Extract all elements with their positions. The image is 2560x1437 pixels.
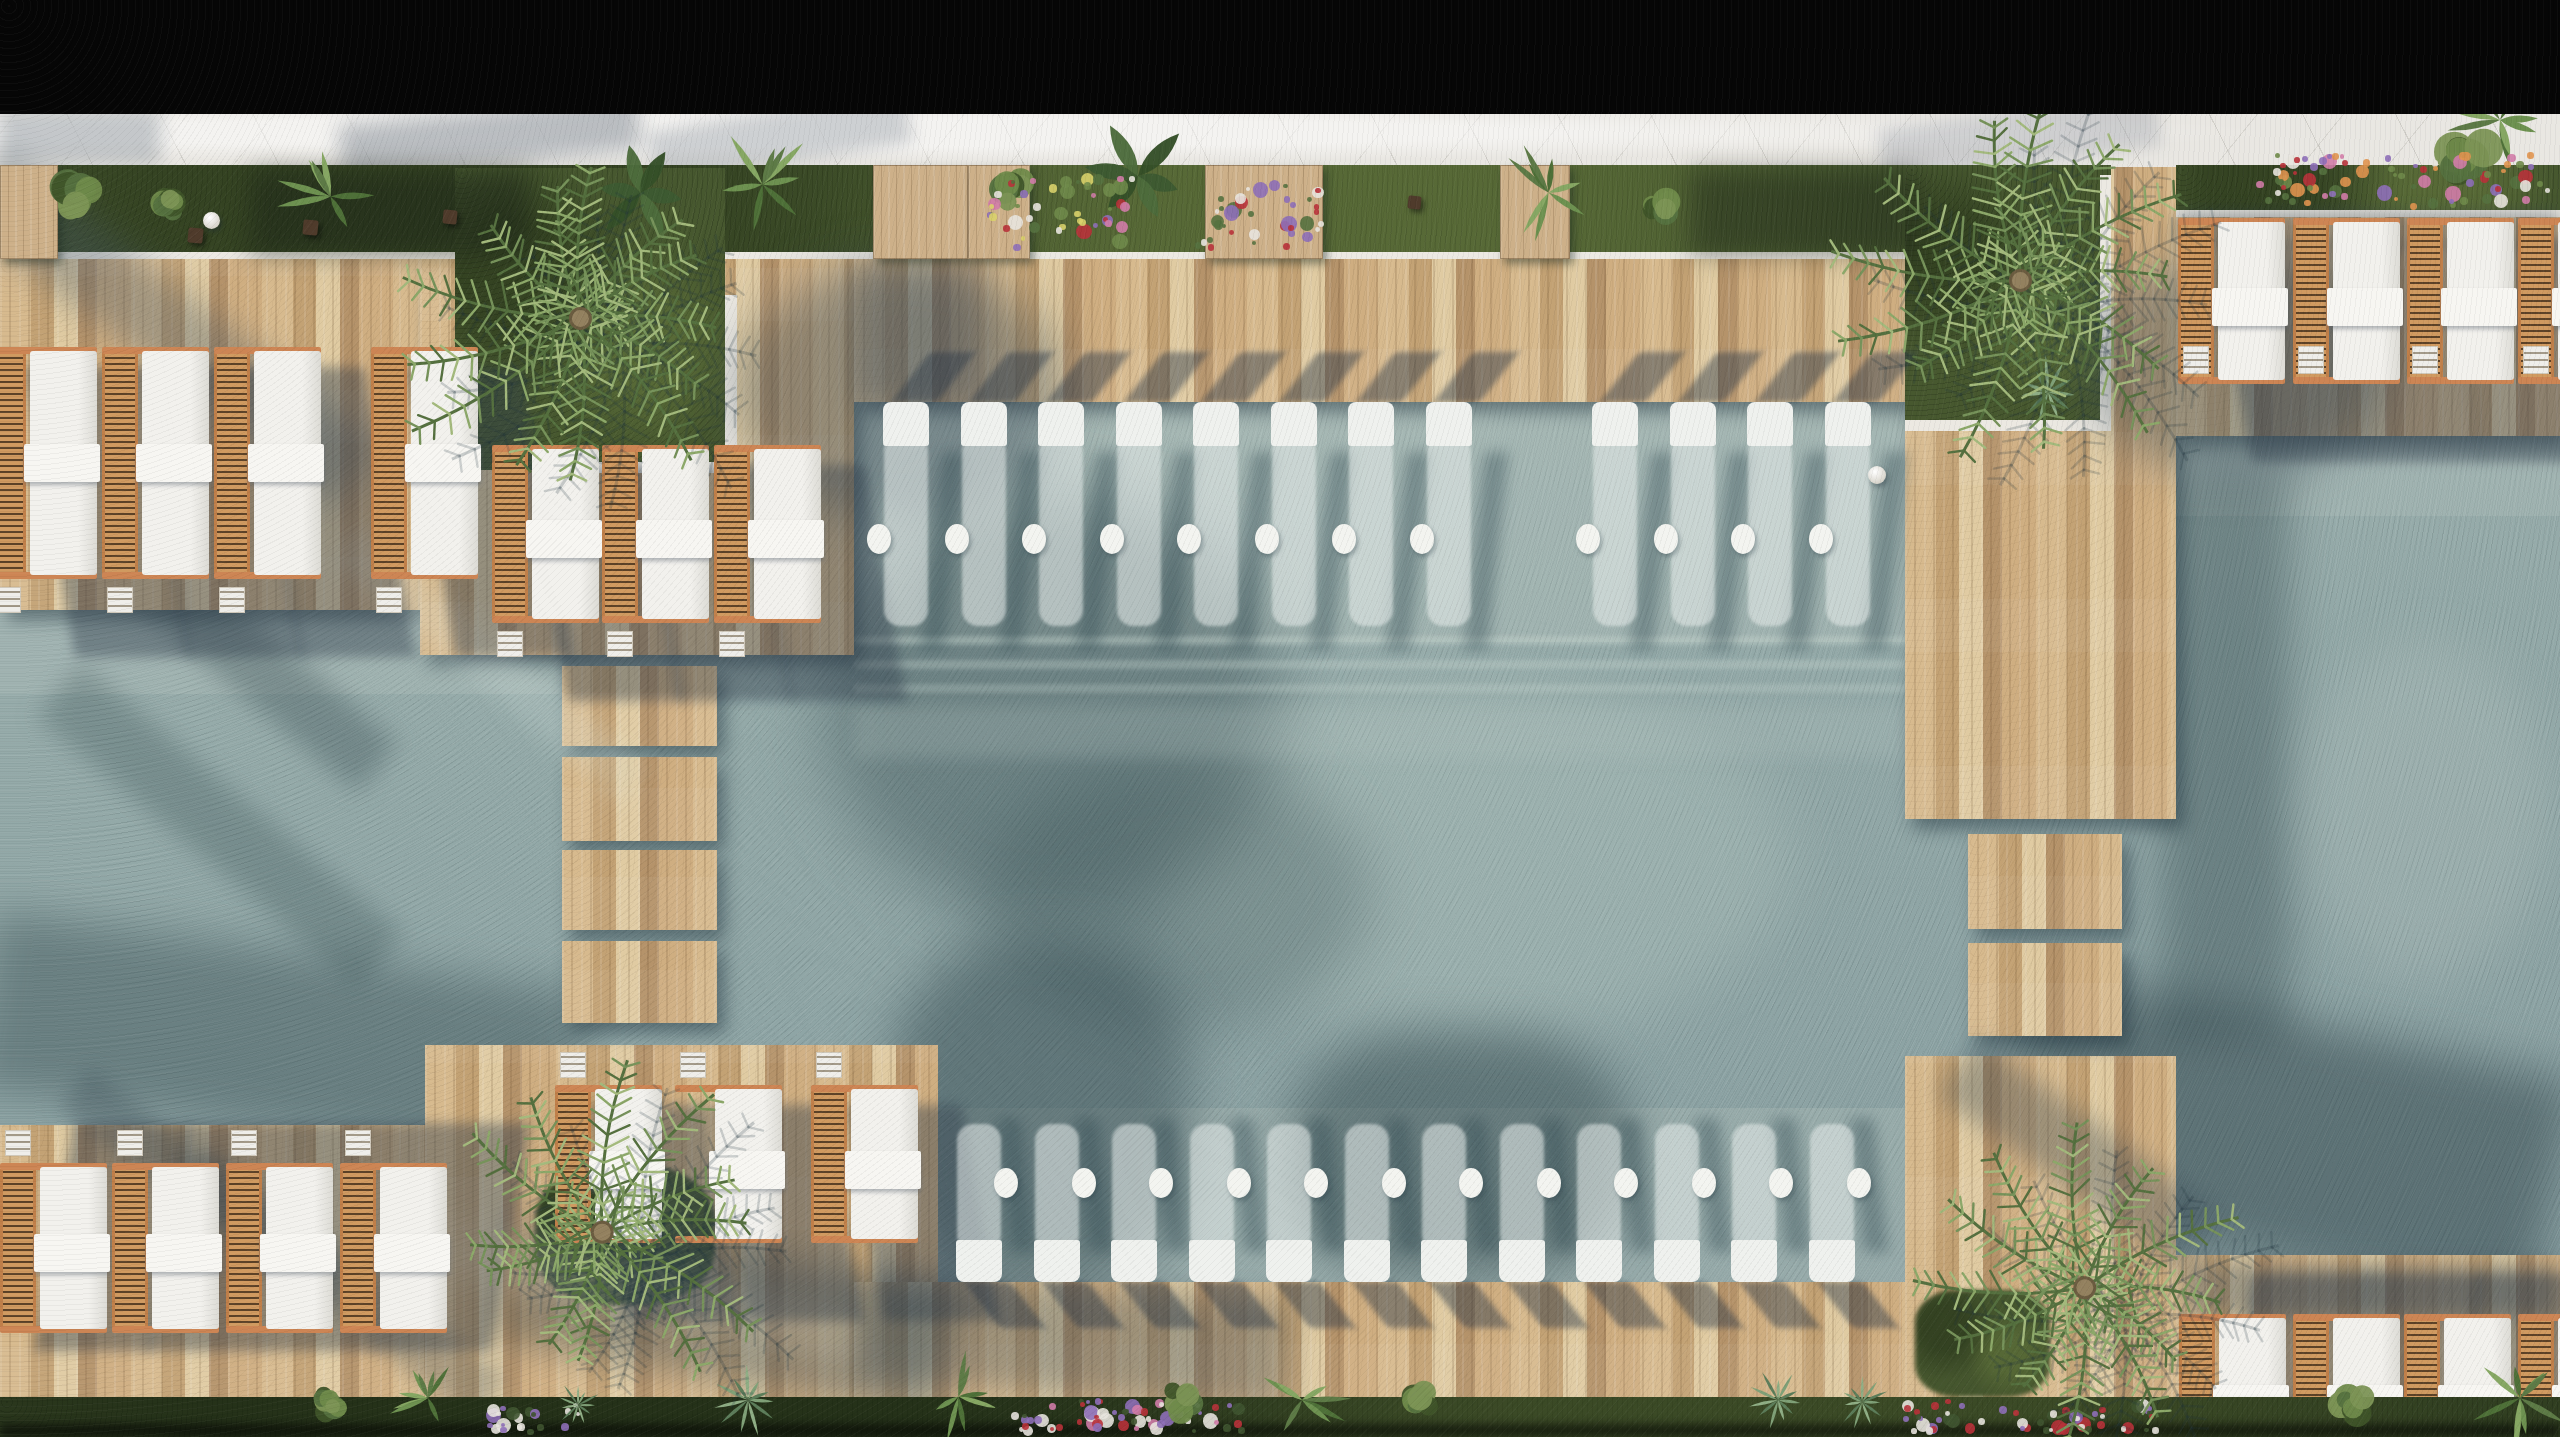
flower-dot	[2444, 159, 2451, 166]
flower-dot	[1093, 174, 1104, 185]
pool-deck-aerial-render	[0, 0, 2560, 1437]
leaf	[1521, 143, 1551, 193]
swim-up-lounger-body	[1039, 440, 1083, 626]
swim-up-lounger-body	[962, 440, 1006, 626]
flower-dot	[2342, 160, 2348, 166]
flower-dot	[1290, 202, 1296, 208]
flower-dot	[2411, 184, 2416, 189]
palm-trunk	[2010, 270, 2030, 290]
underwater-step-band-3	[854, 684, 1905, 693]
flower-dot	[1105, 220, 1112, 227]
flower-dot	[1218, 196, 1224, 202]
shrub	[1159, 1379, 1205, 1425]
flower-dot	[1060, 176, 1072, 188]
flower-dot	[1234, 1420, 1242, 1428]
footstool	[231, 1130, 257, 1156]
swim-up-lounger-head	[1731, 1240, 1777, 1282]
stool-cube	[187, 227, 203, 243]
flower-dot	[1229, 230, 1234, 235]
flower-dot	[2484, 171, 2491, 178]
flower-dot	[1252, 241, 1256, 245]
flower-dot	[1112, 1410, 1117, 1415]
flower-dot	[1302, 232, 1312, 242]
flower-dot	[1034, 1416, 1042, 1424]
flower-dot	[1094, 1415, 1098, 1419]
lounger-trim	[2518, 218, 2560, 225]
flower-dot	[1253, 182, 1269, 198]
swim-up-lounger-body	[1427, 440, 1471, 626]
flower-dot	[1049, 1403, 1056, 1410]
drink-float	[1177, 524, 1201, 554]
flower-dot	[1269, 180, 1280, 191]
flower-dot	[1118, 1420, 1129, 1431]
stool-cube	[1407, 195, 1421, 209]
swim-up-lounger-head	[1266, 1240, 1312, 1282]
flower-dot	[1208, 244, 1215, 251]
lounger-trim	[2518, 1314, 2560, 1321]
shrub	[146, 184, 190, 228]
flower-dot	[1112, 234, 1127, 249]
flower-dot	[1315, 188, 1321, 194]
footstool	[5, 1130, 31, 1156]
bush-tuft	[1176, 1383, 1199, 1406]
flower-bed-bottom-2	[1005, 1398, 1255, 1436]
walkway-shadow-3	[0, 110, 160, 165]
flower-dot	[2410, 203, 2417, 210]
footstool	[219, 587, 245, 613]
drink-float	[1537, 1168, 1561, 1198]
flower-dot	[1192, 1429, 1196, 1433]
shrub	[1636, 178, 1684, 226]
flower-dot	[1222, 224, 1227, 229]
flower-dot	[989, 213, 997, 221]
swim-up-lounger-head	[1426, 402, 1472, 446]
flower-dot	[2516, 161, 2524, 169]
flower-dot	[1214, 1420, 1219, 1425]
leaf	[1546, 189, 1585, 217]
palm-trunk	[570, 308, 590, 328]
drink-float	[1072, 1168, 1096, 1198]
strelitzia	[1506, 150, 1591, 235]
flower-dot	[1307, 197, 1312, 202]
lounger-towel	[2327, 288, 2403, 326]
flower-dot	[1129, 176, 1135, 182]
drink-float	[945, 524, 969, 554]
swim-up-lounger-head	[1344, 1240, 1390, 1282]
flower-dot	[1054, 207, 1068, 221]
globe-lamp	[203, 212, 220, 229]
footstool	[2412, 346, 2438, 374]
swim-up-lounger-head	[1034, 1240, 1080, 1282]
flower-dot	[2418, 175, 2431, 188]
flower-dot	[1288, 230, 1295, 237]
flower-bed-top-2	[1195, 178, 1325, 252]
flower-dot	[2520, 180, 2531, 191]
drink-float	[1692, 1168, 1716, 1198]
flower-dot	[1318, 221, 1324, 227]
swim-up-lounger-head	[1038, 402, 1084, 446]
lounger-towel	[2552, 288, 2560, 326]
flower-dot	[2460, 197, 2468, 205]
flower-dot	[1223, 1424, 1231, 1432]
right-step-1	[1968, 834, 2122, 929]
flower-dot	[1015, 204, 1019, 208]
flower-dot	[1215, 209, 1219, 213]
flower-dot	[1212, 1404, 1219, 1411]
flower-dot	[2522, 196, 2531, 205]
strelitzia	[1262, 1360, 1342, 1437]
swim-up-lounger-head	[1576, 1240, 1622, 1282]
flower-dot	[2393, 173, 2397, 177]
flower-dot	[2527, 152, 2533, 158]
drink-float	[1382, 1168, 1406, 1198]
strelitzia	[2475, 1353, 2560, 1437]
right-pool-light-patch	[2300, 640, 2550, 980]
flower-dot	[2495, 186, 2501, 192]
flower-dot	[1080, 1402, 1085, 1407]
shrub	[1396, 1378, 1440, 1422]
wood-slat-lounger	[112, 1169, 148, 1327]
drink-float	[1410, 524, 1434, 554]
flower-dot	[2545, 188, 2550, 193]
flower-dot	[2428, 198, 2438, 208]
flower-dot	[2377, 185, 2393, 201]
palm-crown	[1824, 74, 2191, 470]
footstool	[0, 587, 21, 613]
flower-dot	[1116, 221, 1128, 233]
drink-float	[1459, 1168, 1483, 1198]
swim-up-lounger-head	[1193, 402, 1239, 446]
footstool	[117, 1130, 143, 1156]
flower-dot	[1219, 206, 1224, 211]
lounger-towel	[34, 1234, 110, 1272]
underwater-bench-band	[854, 706, 1905, 758]
drink-float	[1255, 524, 1279, 554]
lounger-towel	[24, 444, 100, 482]
flower-dot	[1108, 207, 1112, 211]
flower-dot	[2501, 169, 2505, 173]
flower-dot	[1235, 193, 1246, 204]
swim-up-lounger-body	[1272, 440, 1316, 626]
bridge-step-3	[562, 850, 717, 930]
palm-bottom-left	[304, 934, 900, 1437]
drink-float	[1576, 524, 1600, 554]
flower-dot	[2537, 181, 2543, 187]
flower-dot	[1030, 178, 1035, 183]
flower-dot	[2340, 154, 2345, 159]
wood-slat-lounger	[0, 353, 26, 573]
bush-tuft	[1407, 1386, 1432, 1411]
flower-dot	[1003, 225, 1009, 231]
leaf	[1281, 1399, 1304, 1433]
wood-slat-lounger	[102, 353, 138, 573]
flower-dot	[1249, 229, 1260, 240]
swim-up-lounger-head	[1111, 1240, 1157, 1282]
flower-dot	[1146, 1416, 1151, 1421]
drink-float	[1654, 524, 1678, 554]
flower-dot	[2482, 194, 2492, 204]
flower-dot	[1008, 215, 1023, 230]
swim-up-lounger-head	[1654, 1240, 1700, 1282]
flower-dot	[1050, 1427, 1054, 1431]
swim-up-lounger-head	[1271, 402, 1317, 446]
swim-up-lounger-head	[1348, 402, 1394, 446]
lounger-towel	[136, 444, 212, 482]
lounger-trim	[2518, 377, 2560, 384]
flower-dot	[1283, 243, 1290, 250]
flower-dot	[1074, 211, 1081, 218]
flower-dot	[2398, 173, 2405, 180]
underwater-step-band-2	[854, 660, 1905, 669]
swim-up-lounger-head	[1116, 402, 1162, 446]
flower-dot	[2466, 179, 2474, 187]
drink-float	[1614, 1168, 1638, 1198]
flower-dot	[1013, 244, 1021, 252]
flower-dot	[2494, 194, 2508, 208]
drink-float	[1332, 524, 1356, 554]
flower-dot	[1056, 227, 1063, 234]
palm-bottom-right	[1793, 996, 2377, 1437]
flower-dot	[1314, 209, 1320, 215]
flower-dot	[2528, 164, 2533, 169]
footstool	[2523, 346, 2549, 374]
wood-slat-lounger	[0, 1169, 36, 1327]
flower-dot	[1288, 225, 1294, 231]
flower-dot	[2363, 159, 2371, 167]
flower-dot	[1095, 1398, 1102, 1405]
flower-dot	[2394, 197, 2398, 201]
flower-dot	[1022, 1414, 1026, 1418]
flower-dot	[2341, 193, 2348, 200]
flower-dot	[2340, 177, 2351, 188]
wood-slat-lounger	[214, 353, 250, 573]
flower-dot	[1077, 1419, 1083, 1425]
flower-dot	[1118, 1414, 1125, 1421]
swim-up-lounger-head	[1421, 1240, 1467, 1282]
palm-trunk	[592, 1222, 612, 1242]
flower-dot	[1201, 239, 1208, 246]
flower-dot	[2433, 166, 2438, 171]
flower-dot	[2356, 165, 2369, 178]
flower-dot	[1300, 216, 1315, 231]
flower-dot	[994, 191, 1002, 199]
drink-float	[994, 1168, 1018, 1198]
swim-up-lounger-head	[1189, 1240, 1235, 1282]
flower-dot	[2388, 166, 2395, 173]
letterbox-top	[0, 0, 2560, 114]
flower-bed-top-1	[985, 172, 1135, 252]
flower-dot	[1033, 203, 1041, 211]
leaf	[1506, 155, 1550, 194]
flower-dot	[1027, 1417, 1034, 1424]
leaf	[2518, 1370, 2550, 1400]
leaf	[1547, 179, 1581, 194]
swim-up-lounger-head	[961, 402, 1007, 446]
swim-up-lounger-head	[956, 1240, 1002, 1282]
flower-dot	[1091, 193, 1096, 198]
swim-up-lounger-body	[1194, 440, 1238, 626]
flower-dot	[1134, 1426, 1139, 1431]
flower-dot	[1232, 1403, 1244, 1415]
swim-up-lounger-body	[1593, 440, 1637, 626]
flower-dot	[1248, 211, 1254, 217]
bush-tuft	[63, 192, 89, 218]
bush-tuft	[1655, 198, 1676, 219]
leaf	[1132, 128, 1185, 182]
flower-dot	[2413, 164, 2417, 168]
flower-dot	[1238, 1427, 1245, 1434]
lounger-towel	[2441, 288, 2517, 326]
flower-dot	[1131, 1418, 1138, 1425]
flower-dot	[1227, 1403, 1232, 1408]
flower-dot	[1207, 237, 1213, 243]
flower-dot	[1195, 242, 1201, 248]
flower-dot	[1086, 1400, 1090, 1404]
flower-dot	[1079, 219, 1086, 226]
palm-trunk	[2075, 1278, 2095, 1298]
leaf	[1520, 190, 1550, 234]
bush-tuft	[161, 190, 180, 209]
flower-dot	[1093, 223, 1098, 228]
drink-float	[1022, 524, 1046, 554]
flower-dot	[1141, 1408, 1149, 1416]
drink-float	[1149, 1168, 1173, 1198]
lounger-towel	[146, 1234, 222, 1272]
swim-up-lounger-body	[1117, 440, 1161, 626]
flower-dot	[1120, 202, 1130, 212]
flower-dot	[1224, 205, 1240, 221]
flower-dot	[2459, 152, 2467, 160]
shrub	[44, 165, 106, 227]
flower-dot	[1283, 184, 1287, 188]
leaf	[2472, 1395, 2521, 1423]
flower-dot	[2420, 166, 2427, 173]
flower-dot	[1020, 190, 1028, 198]
drink-float	[1100, 524, 1124, 554]
flower-dot	[1076, 224, 1092, 240]
flower-dot	[1084, 182, 1092, 190]
drink-float	[1769, 1168, 1793, 1198]
flower-dot	[1056, 1424, 1063, 1431]
flower-dot	[1021, 236, 1026, 241]
flower-dot	[1029, 222, 1040, 233]
flower-dot	[1011, 1412, 1019, 1420]
flower-dot	[1246, 187, 1250, 191]
flower-dot	[2504, 161, 2511, 168]
flower-dot	[2385, 155, 2391, 161]
strelitzia	[921, 1359, 996, 1434]
drink-float	[1227, 1168, 1251, 1198]
flower-dot	[1284, 196, 1291, 203]
flower-dot	[1315, 227, 1320, 232]
flower-dot	[1049, 184, 1057, 192]
drink-float	[1304, 1168, 1328, 1198]
flower-dot	[1093, 1423, 1103, 1433]
footstool	[107, 587, 133, 613]
leaf	[1274, 1380, 1303, 1402]
swim-up-lounger-head	[1592, 402, 1638, 446]
flower-dot	[1314, 204, 1320, 210]
wood-slat-lounger	[226, 1169, 262, 1327]
flower-dot	[1076, 180, 1080, 184]
swim-up-lounger-head	[1499, 1240, 1545, 1282]
swim-up-lounger-body	[1349, 440, 1393, 626]
